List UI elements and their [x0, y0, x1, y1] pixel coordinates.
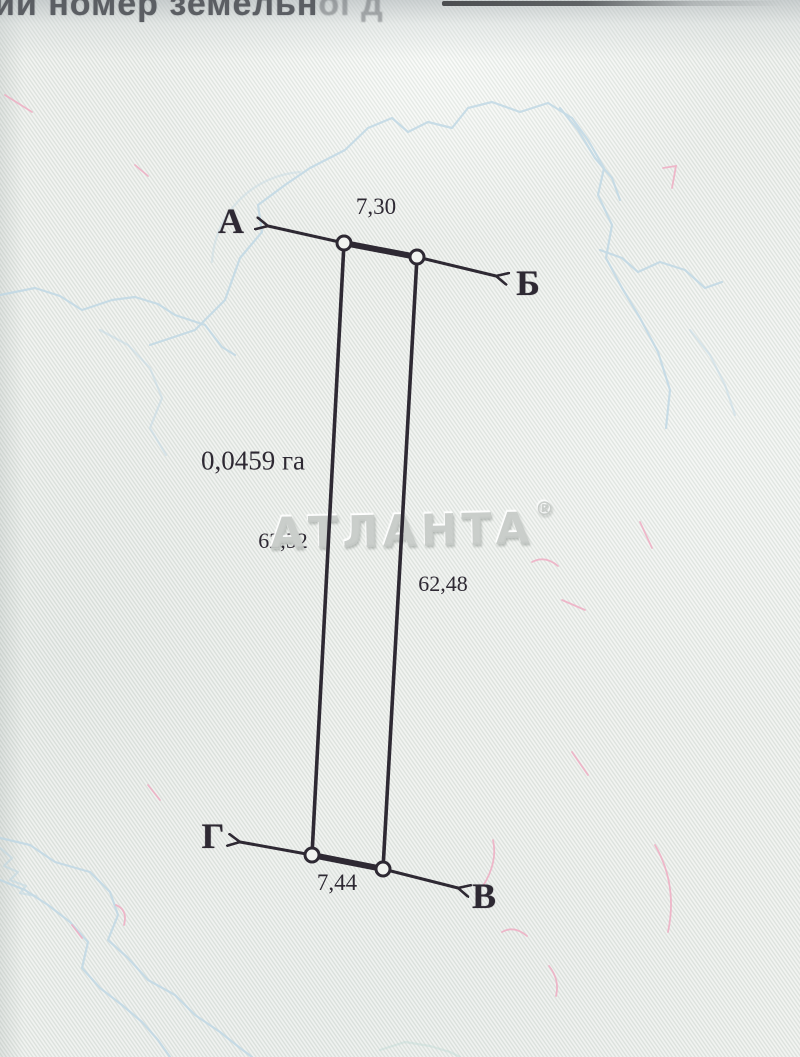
area-label: 0,0459 га: [201, 446, 305, 477]
parcel-edge-top: [344, 243, 417, 257]
length-label-bottom-side: 7,44: [317, 870, 357, 896]
length-label-right-side: 62,48: [418, 571, 468, 597]
parcel-plan-drawing: [0, 0, 800, 1057]
parcel-edge-left: [312, 243, 344, 855]
point-label-g: Г: [202, 815, 225, 857]
parcel-edge-bottom: [312, 855, 383, 869]
arrow-to-point-a: [268, 226, 344, 243]
vertex-marker-top-left: [337, 236, 351, 250]
vertex-marker-bottom-right: [376, 862, 390, 876]
scanned-document: ий номер земельної д: [0, 0, 800, 1057]
direction-arrows: [240, 226, 496, 888]
vertex-marker-top-right: [410, 250, 424, 264]
point-label-v: В: [472, 875, 496, 917]
arrow-to-point-b: [417, 257, 496, 276]
parcel-edge-right: [383, 257, 417, 869]
parcel-outline: [312, 243, 417, 869]
vertex-marker-bottom-left: [305, 848, 319, 862]
vertex-markers: [305, 236, 424, 876]
point-label-a: А: [218, 200, 244, 242]
point-label-b: Б: [516, 262, 540, 304]
arrow-to-point-g: [240, 842, 312, 855]
arrow-to-point-v: [383, 869, 458, 888]
length-label-top-side: 7,30: [356, 194, 396, 220]
